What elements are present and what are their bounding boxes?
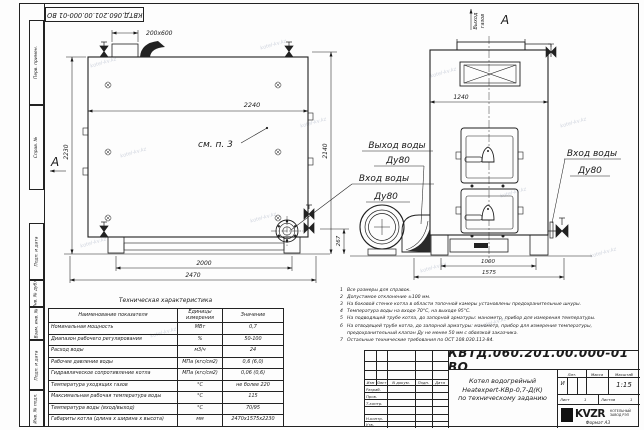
table-row: Температура уходящих газов°Сне более 220: [49, 380, 284, 392]
note-item: 4Температура воды на входе 70°С, на выхо…: [336, 308, 636, 315]
col-izm: Изм: [365, 380, 376, 385]
note-item: 6На отводящей трубе котла, до запорной а…: [336, 323, 636, 337]
doc-number: КВТД.060.201.00.000-01 ВО: [448, 351, 640, 370]
mass-header: Масса: [586, 372, 608, 377]
scale-value: 1:15: [608, 381, 640, 389]
col-ndoc: N докум.: [387, 380, 415, 385]
table-row: Номинальная мощностьМВт0,7: [49, 323, 284, 335]
lit-header: Лит.: [558, 372, 586, 377]
sheets-value: 1: [630, 397, 632, 402]
sheet-label: Лист: [560, 397, 570, 402]
top-doc-number-stamp: КВТД.060.201.00.000-01 ВО: [45, 7, 144, 22]
note-item: 3На боковой стенке котла в области топоч…: [336, 301, 636, 308]
col-podp: Подп.: [415, 380, 432, 385]
row-utv: Утв.: [366, 422, 374, 427]
kvzr-logo-mark: [561, 408, 573, 422]
format-label: Формат А3: [560, 421, 636, 426]
row-razrab: Разраб.: [366, 387, 381, 392]
tech-characteristics: Техническая характеристика Наименование …: [48, 297, 283, 427]
note-item: 1Все размеры для справок.: [336, 287, 636, 294]
tech-header-row: Наименование показателя Единицы измерени…: [49, 309, 284, 323]
tech-table: Наименование показателя Единицы измерени…: [48, 308, 284, 427]
table-row: Расход водым3/ч24: [49, 346, 284, 358]
sheets-label: Листов: [601, 397, 615, 402]
table-row: Гидравлическое сопротивление котлаМПа (к…: [49, 369, 284, 381]
scale-header: Масштаб: [608, 372, 640, 377]
margin-cell-inv-dubl: Инв. № дубл.: [29, 280, 44, 307]
margin-cell-podp-data-2: Подп. и дата: [29, 340, 44, 390]
table-row: Диапазон рабочего регулирования%50-100: [49, 334, 284, 346]
margin-cell-perv-primen: Перв. примен.: [29, 20, 44, 105]
kvzr-logo-subtext: КОТЕЛЬНЫЙ ЗАВОД РЭП: [610, 409, 631, 417]
product-name: Котел водогрейный Heatexpert-КВр-0,7-Д(К…: [448, 370, 558, 428]
col-data: Дата: [432, 380, 448, 385]
note-item: 2Допустимое отклонение ±100 мм.: [336, 294, 636, 301]
row-prov: Пров.: [366, 394, 377, 399]
kvzr-logo-text: KVZR: [575, 408, 605, 420]
table-row: Рабочее давление водыМПа (кгс/см2)0,6 (6…: [49, 357, 284, 369]
tech-table-title: Техническая характеристика: [48, 297, 283, 308]
title-block-right: Лит. Масса Масштаб И 1:15 Лист 1 Листов …: [558, 370, 640, 428]
note-item: 7Остальные технические требования по ОСТ…: [336, 337, 636, 344]
margin-cell-inv-podl: Инв. № подл.: [29, 390, 44, 427]
margin-cell-vzam-inv: Взам. инв. №: [29, 307, 44, 340]
table-row: Габариты котла (длина х ширина х высота)…: [49, 415, 284, 427]
title-block: Изм Лист N докум. Подп. Дата Разраб. Про…: [364, 350, 639, 427]
lit-value: И: [558, 381, 567, 387]
row-tkontr: Т.контр.: [366, 401, 382, 406]
col-list: Лист: [376, 380, 387, 385]
engineering-drawing-page: { "stamp_top": "КВТД.060.201.00.000-01 В…: [0, 0, 644, 430]
table-row: Максимальная рабочая температура воды°С1…: [49, 392, 284, 404]
note-item: 5На подводящей трубе котла, до запорной …: [336, 315, 636, 322]
margin-cell-sprav: Справ. №: [29, 105, 44, 190]
margin-cell-podp-data-1: Подп. и дата: [29, 223, 44, 280]
top-doc-number: КВТД.060.201.00.000-01 ВО: [47, 11, 143, 19]
sheet-value: 1: [584, 397, 586, 402]
table-row: Температура воды (вход/выход)°С70/95: [49, 403, 284, 415]
notes-list: 1Все размеры для справок. 2Допустимое от…: [336, 287, 636, 344]
row-nkontr: Н.контр.: [366, 416, 383, 421]
inner-frame-line: [44, 3, 45, 427]
